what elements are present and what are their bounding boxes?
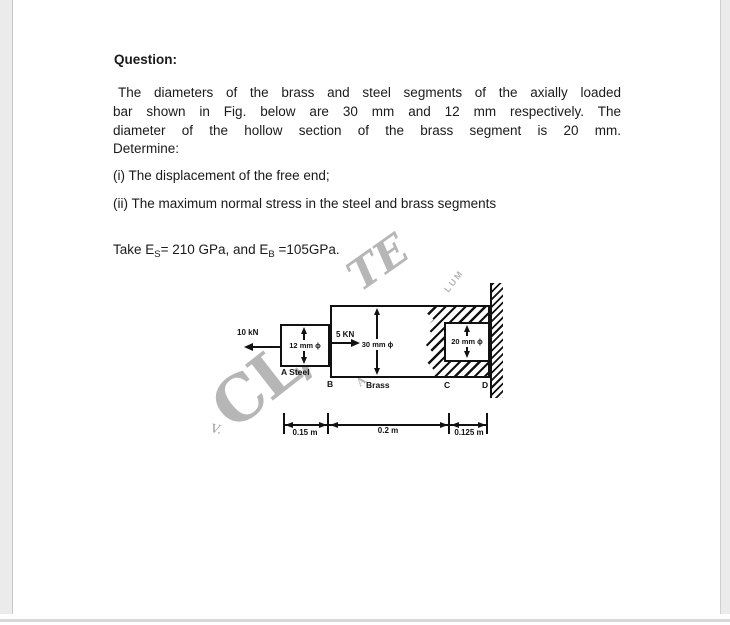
question-item-2: (ii) The maximum normal stress in the st… [113, 196, 496, 211]
watermark-fragment-top: TE [338, 224, 418, 300]
force-arrow-line [251, 346, 280, 348]
diameter-arrow-line [466, 347, 468, 352]
label-a-steel: A Steel [281, 367, 310, 377]
dimension-label-0-2m: 0.2 m [352, 420, 424, 438]
left-arrowhead-icon [285, 422, 293, 428]
right-arrowhead-icon [440, 422, 448, 428]
label-c: C [444, 380, 450, 390]
right-arrowhead-icon [478, 422, 486, 428]
material-properties-mid: = 210 GPa, and E [161, 242, 269, 257]
paragraph-line: The diameters of the brass and steel seg… [113, 84, 621, 103]
down-arrowhead-icon [464, 351, 470, 358]
dimension-label-0-15m: 0.15 m [283, 428, 327, 437]
watermark-fragment-lum: LUM [442, 268, 466, 294]
left-arrowhead-icon [451, 422, 459, 428]
diameter-label-brass: 30 mm ϕ [333, 340, 422, 349]
label-b: B [327, 379, 333, 389]
diameter-arrow-line [466, 331, 468, 336]
material-properties-suffix: =105GPa. [275, 242, 340, 257]
pen-mark: V. [210, 421, 223, 437]
question-item-1: (i) The displacement of the free end; [113, 168, 330, 183]
force-label-10kN: 10 kN [237, 328, 258, 337]
right-arrowhead-icon [319, 422, 327, 428]
diameter-label-hollow: 20 mm ϕ [446, 337, 488, 346]
question-paragraph: The diameters of the brass and steel seg… [113, 84, 621, 159]
diameter-arrow-line [376, 350, 378, 369]
paragraph-line: bar shown in Fig. below are 30 mm and 12… [113, 103, 621, 122]
page-bottom-edge [0, 619, 730, 622]
subscript-b: B [268, 249, 274, 260]
material-properties-prefix: Take E [113, 242, 154, 257]
diameter-arrow-line [303, 333, 305, 340]
fixed-wall-hatching [490, 283, 503, 398]
label-d: D [482, 380, 488, 390]
force-label-5KN: 5 KN [336, 330, 354, 339]
material-properties: Take ES= 210 GPa, and EB =105GPa. [113, 242, 340, 257]
down-arrowhead-icon [374, 368, 380, 375]
document-page: Question: The diameters of the brass and… [0, 0, 730, 625]
label-brass: Brass [366, 380, 390, 390]
viewer-right-margin [720, 0, 730, 614]
down-arrowhead-icon [301, 357, 307, 364]
question-heading: Question: [114, 52, 177, 67]
diameter-arrow-line [376, 314, 378, 339]
paragraph-line: Determine: [113, 140, 621, 159]
left-arrowhead-icon [330, 422, 338, 428]
paragraph-line: diameter of the hollow section of the br… [113, 122, 621, 141]
viewer-left-margin [0, 0, 13, 614]
diameter-label-steel: 12 mm ϕ [282, 341, 328, 350]
subscript-s: S [154, 249, 160, 260]
left-arrowhead-icon [244, 343, 253, 351]
dimension-label-0-125m: 0.125 m [447, 428, 491, 437]
